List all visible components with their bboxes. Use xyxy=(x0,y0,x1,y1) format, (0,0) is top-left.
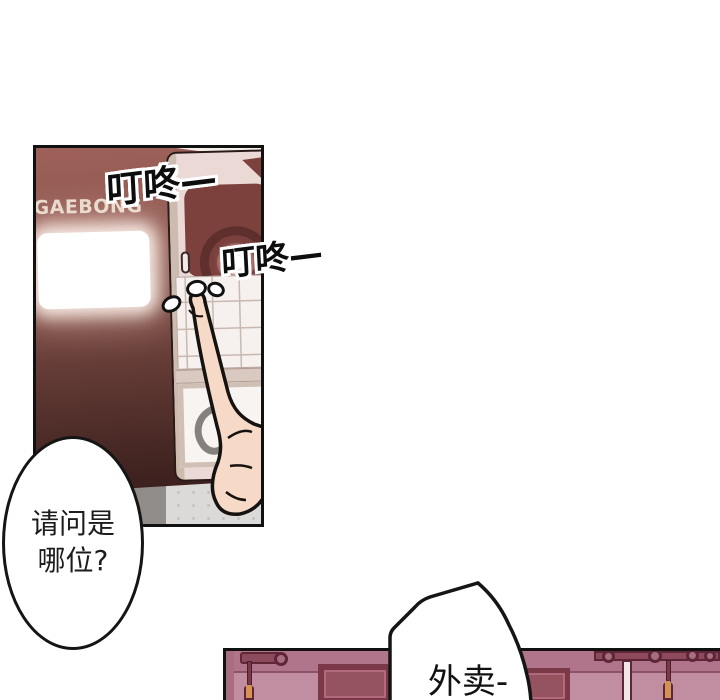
bracket-ring xyxy=(274,652,288,666)
bubble-whois-line2: 哪位? xyxy=(31,543,115,580)
corner-triangle xyxy=(242,156,264,187)
pressing-hand xyxy=(136,288,264,524)
bubble-whois-line1: 请问是 xyxy=(31,506,115,543)
rod-handle xyxy=(663,679,673,700)
bracket-ring xyxy=(602,650,615,663)
speaker-slot xyxy=(181,251,191,273)
bracket-ring xyxy=(648,649,662,663)
bracket-ring xyxy=(704,650,716,662)
speech-bubble-whois: 请问是 哪位? xyxy=(2,436,144,650)
bracket-ring xyxy=(686,649,699,662)
door-frame-left xyxy=(318,664,392,700)
wall-edge-strip xyxy=(226,651,234,700)
comic-page: GAEBONG xyxy=(0,0,720,700)
bubble-delivery-text: 外卖- xyxy=(408,654,528,700)
hanging-rod xyxy=(622,660,632,700)
rod-handle xyxy=(244,683,254,700)
nameplate-light xyxy=(37,231,151,310)
